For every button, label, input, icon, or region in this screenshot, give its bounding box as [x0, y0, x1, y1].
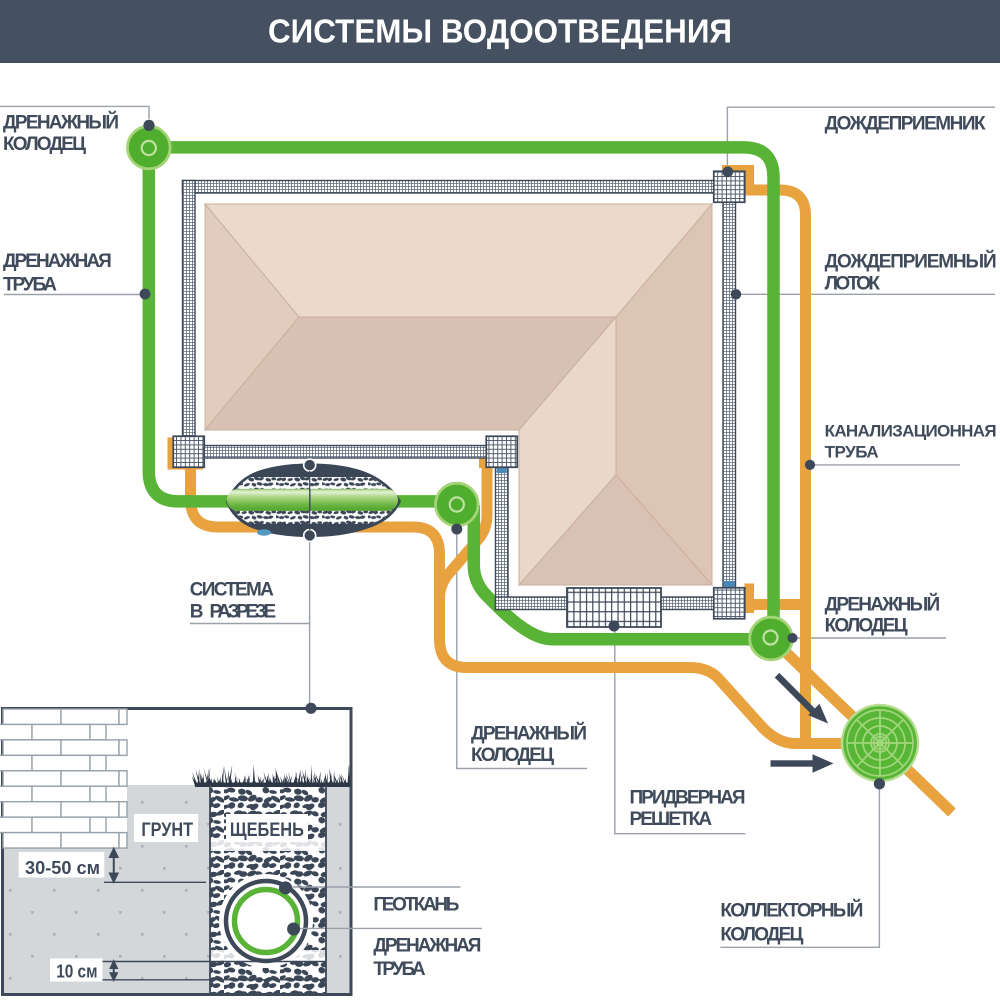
svg-text:СИСТЕМА: СИСТЕМА [190, 580, 274, 601]
svg-text:ТРУБА: ТРУБА [825, 442, 879, 461]
svg-text:КАНАЛИЗАЦИОННАЯ: КАНАЛИЗАЦИОННАЯ [825, 421, 997, 440]
svg-text:ДРЕНАЖНЫЙ: ДРЕНАЖНЫЙ [3, 112, 119, 134]
svg-text:КОЛОДЕЦ: КОЛОДЕЦ [471, 745, 554, 766]
svg-text:ПРИДВЕРНАЯ: ПРИДВЕРНАЯ [630, 787, 746, 808]
svg-text:ДОЖДЕПРИЕМНИК: ДОЖДЕПРИЕМНИК [825, 114, 986, 135]
svg-text:КОЛОДЕЦ: КОЛОДЕЦ [720, 924, 803, 945]
svg-text:КОЛЛЕКТОРНЫЙ: КОЛЛЕКТОРНЫЙ [720, 900, 863, 922]
svg-text:ДРЕНАЖНАЯ: ДРЕНАЖНАЯ [3, 251, 112, 272]
svg-text:ДРЕНАЖНЫЙ: ДРЕНАЖНЫЙ [471, 723, 587, 745]
svg-text:ДРЕНАЖНАЯ: ДРЕНАЖНАЯ [373, 936, 481, 957]
svg-text:ГРУНТ: ГРУНТ [141, 820, 193, 841]
svg-text:30-50 см: 30-50 см [25, 857, 100, 878]
svg-text:ТРУБА: ТРУБА [373, 959, 425, 980]
svg-text:ЩЕБЕНЬ: ЩЕБЕНЬ [230, 820, 304, 841]
svg-text:ЛОТОК: ЛОТОК [825, 273, 881, 294]
svg-text:КОЛОДЕЦ: КОЛОДЕЦ [825, 615, 908, 636]
svg-text:10 см: 10 см [56, 961, 97, 982]
svg-text:В: В [190, 602, 204, 623]
svg-text:КОЛОДЕЦ: КОЛОДЕЦ [3, 134, 86, 155]
svg-text:СИСТЕМЫ ВОДООТВЕДЕНИЯ: СИСТЕМЫ ВОДООТВЕДЕНИЯ [268, 14, 732, 51]
svg-text:ДРЕНАЖНЫЙ: ДРЕНАЖНЫЙ [825, 593, 941, 615]
svg-text:РАЗРЕЗЕ: РАЗРЕЗЕ [210, 602, 277, 623]
svg-text:ТРУБА: ТРУБА [3, 275, 57, 296]
svg-text:ГЕОТКАНЬ: ГЕОТКАНЬ [373, 894, 459, 915]
svg-text:ДОЖДЕПРИЕМНЫЙ: ДОЖДЕПРИЕМНЫЙ [825, 250, 997, 272]
svg-text:РЕШЕТКА: РЕШЕТКА [630, 809, 713, 830]
